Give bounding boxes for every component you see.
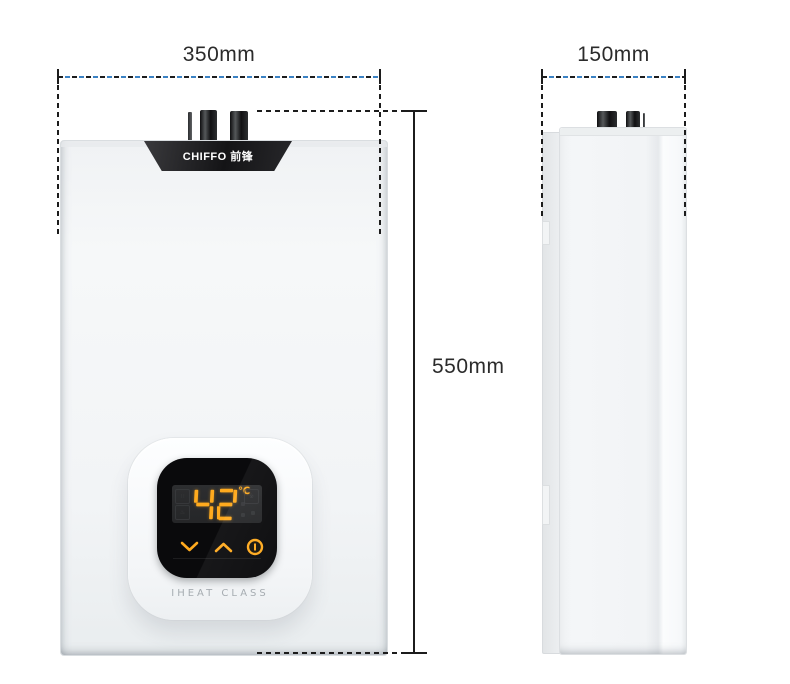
display-screen: ∷ ♨ ℃ ※ bbox=[157, 458, 277, 578]
brand-panel: CHIFFO 前锋 bbox=[144, 141, 292, 171]
chevron-up-icon bbox=[214, 541, 233, 553]
height-dimension-line bbox=[413, 111, 415, 654]
lcd-window: ∷ ♨ ℃ ※ bbox=[172, 485, 262, 523]
heater-side-body bbox=[559, 127, 687, 655]
depth-tick-left bbox=[541, 69, 543, 84]
height-extension-bottom bbox=[257, 652, 403, 654]
backplate-tab-bottom bbox=[542, 485, 550, 525]
width-extension-left bbox=[57, 85, 59, 237]
width-tick-right bbox=[379, 69, 381, 84]
status-dot-2 bbox=[241, 513, 245, 517]
status-dot-3 bbox=[251, 511, 255, 515]
chevron-down-icon bbox=[180, 541, 199, 553]
width-extension-right bbox=[379, 85, 381, 237]
depth-tick-right bbox=[684, 69, 686, 84]
mode-icon-bottom: ♨ bbox=[175, 505, 190, 520]
width-dimension-label: 350mm bbox=[58, 43, 380, 67]
mode-icon-top: ∷ bbox=[175, 489, 190, 504]
temperature-unit: ℃ bbox=[238, 486, 250, 497]
flue-pipe-left bbox=[200, 110, 217, 144]
mode-icon-right: ※ bbox=[244, 489, 259, 504]
power-icon bbox=[246, 538, 264, 556]
control-panel: ∷ ♨ ℃ ※ bbox=[128, 438, 312, 620]
button-row-divider bbox=[173, 558, 261, 559]
series-label: IHEAT CLASS bbox=[128, 588, 312, 599]
depth-dimension-label: 150mm bbox=[542, 43, 685, 67]
status-dot-1 bbox=[241, 502, 245, 506]
width-tick-left bbox=[57, 69, 59, 84]
height-dimension-label: 550mm bbox=[432, 355, 512, 379]
height-extension-top bbox=[257, 110, 403, 112]
brand-logo: CHIFFO 前锋 bbox=[183, 148, 254, 164]
height-tick-bottom bbox=[402, 652, 427, 654]
side-top-face bbox=[560, 128, 686, 136]
depth-extension-right bbox=[684, 85, 686, 218]
depth-extension-left bbox=[541, 85, 543, 218]
flue-pipe-rod bbox=[188, 112, 192, 143]
width-dimension-line bbox=[58, 76, 380, 78]
depth-dimension-line bbox=[542, 76, 685, 78]
temperature-display bbox=[194, 488, 238, 521]
product-dimension-diagram: CHIFFO 前锋 ∷ ♨ ℃ ※ bbox=[0, 0, 790, 684]
backplate-tab-top bbox=[542, 221, 550, 245]
